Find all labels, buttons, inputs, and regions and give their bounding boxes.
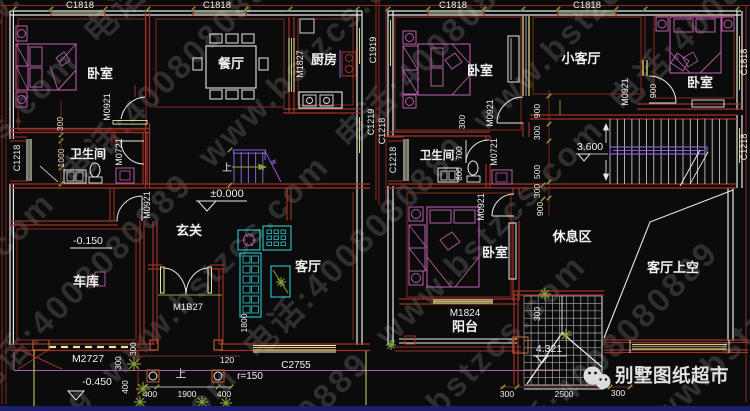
svg-text:1800: 1800 <box>239 313 249 332</box>
svg-text:客厅上空: 客厅上空 <box>647 260 699 275</box>
svg-text:C1919: C1919 <box>368 37 378 64</box>
svg-text:800: 800 <box>455 167 464 181</box>
svg-text:3.600: 3.600 <box>577 141 603 153</box>
svg-text:±0.000: ±0.000 <box>210 188 244 200</box>
svg-text:C1218: C1218 <box>388 147 398 174</box>
svg-text:C2755: C2755 <box>281 360 311 371</box>
svg-text:M0921: M0921 <box>620 78 630 106</box>
svg-text:2500: 2500 <box>555 389 574 399</box>
svg-text:-0.450: -0.450 <box>82 376 112 388</box>
svg-text:300: 300 <box>532 126 542 140</box>
svg-text:卧室: 卧室 <box>467 63 493 78</box>
svg-text:C1218: C1218 <box>377 118 387 145</box>
svg-text:900: 900 <box>648 84 658 98</box>
svg-text:300: 300 <box>532 184 542 198</box>
svg-text:900: 900 <box>532 104 542 118</box>
svg-text:别墅图纸超市: 别墅图纸超市 <box>614 365 729 386</box>
svg-text:C1219: C1219 <box>366 109 376 136</box>
svg-text:C1818: C1818 <box>439 0 467 11</box>
svg-text:C1218: C1218 <box>739 134 749 161</box>
svg-text:300: 300 <box>129 342 138 356</box>
svg-text:阳台: 阳台 <box>452 319 478 334</box>
svg-text:4.321: 4.321 <box>536 343 562 355</box>
svg-text:卫生间: 卫生间 <box>420 148 455 162</box>
svg-text:客厅: 客厅 <box>295 259 321 274</box>
svg-text:M0921: M0921 <box>142 191 152 219</box>
svg-text:r=150: r=150 <box>237 371 263 382</box>
svg-text:餐厅: 餐厅 <box>217 56 244 71</box>
svg-text:900: 900 <box>535 202 545 216</box>
svg-text:卧室: 卧室 <box>87 66 113 81</box>
svg-text:C1818: C1818 <box>203 0 231 11</box>
svg-text:卫生间: 卫生间 <box>70 146 106 161</box>
svg-text:C1218: C1218 <box>12 145 22 172</box>
svg-text:-0.150: -0.150 <box>73 235 103 247</box>
svg-text:300: 300 <box>532 307 542 321</box>
svg-text:M0721: M0721 <box>489 138 499 166</box>
svg-text:车库: 车库 <box>73 274 99 289</box>
svg-text:M1827: M1827 <box>295 50 305 78</box>
svg-text:M1B27: M1B27 <box>173 302 203 313</box>
svg-text:300: 300 <box>114 356 123 370</box>
svg-text:上: 上 <box>222 162 232 174</box>
svg-text:1900: 1900 <box>178 389 197 399</box>
svg-text:休息区: 休息区 <box>551 229 591 244</box>
svg-text:M1824: M1824 <box>450 308 481 319</box>
svg-text:卧室: 卧室 <box>482 245 508 260</box>
svg-text:M0921: M0921 <box>476 193 486 221</box>
svg-text:400: 400 <box>217 389 231 399</box>
svg-text:300: 300 <box>500 389 514 399</box>
svg-text:C1818: C1818 <box>739 49 749 76</box>
svg-text:700: 700 <box>455 146 464 160</box>
svg-text:卧室: 卧室 <box>687 75 713 90</box>
svg-text:400: 400 <box>121 380 130 394</box>
svg-text:500: 500 <box>532 165 542 179</box>
svg-text:300: 300 <box>55 117 65 131</box>
svg-text:玄关: 玄关 <box>176 223 202 238</box>
svg-text:M0921: M0921 <box>485 99 495 127</box>
svg-text:300: 300 <box>457 115 467 129</box>
svg-text:C1818: C1818 <box>66 0 94 11</box>
svg-text:厨房: 厨房 <box>311 52 337 67</box>
svg-text:300: 300 <box>611 388 625 398</box>
svg-text:上: 上 <box>176 368 187 380</box>
svg-text:M0921: M0921 <box>102 93 112 121</box>
svg-text:C1818: C1818 <box>573 0 601 11</box>
svg-text:小客厅: 小客厅 <box>561 51 600 66</box>
svg-text:M0721: M0721 <box>114 138 124 166</box>
svg-text:M2727: M2727 <box>72 353 104 365</box>
